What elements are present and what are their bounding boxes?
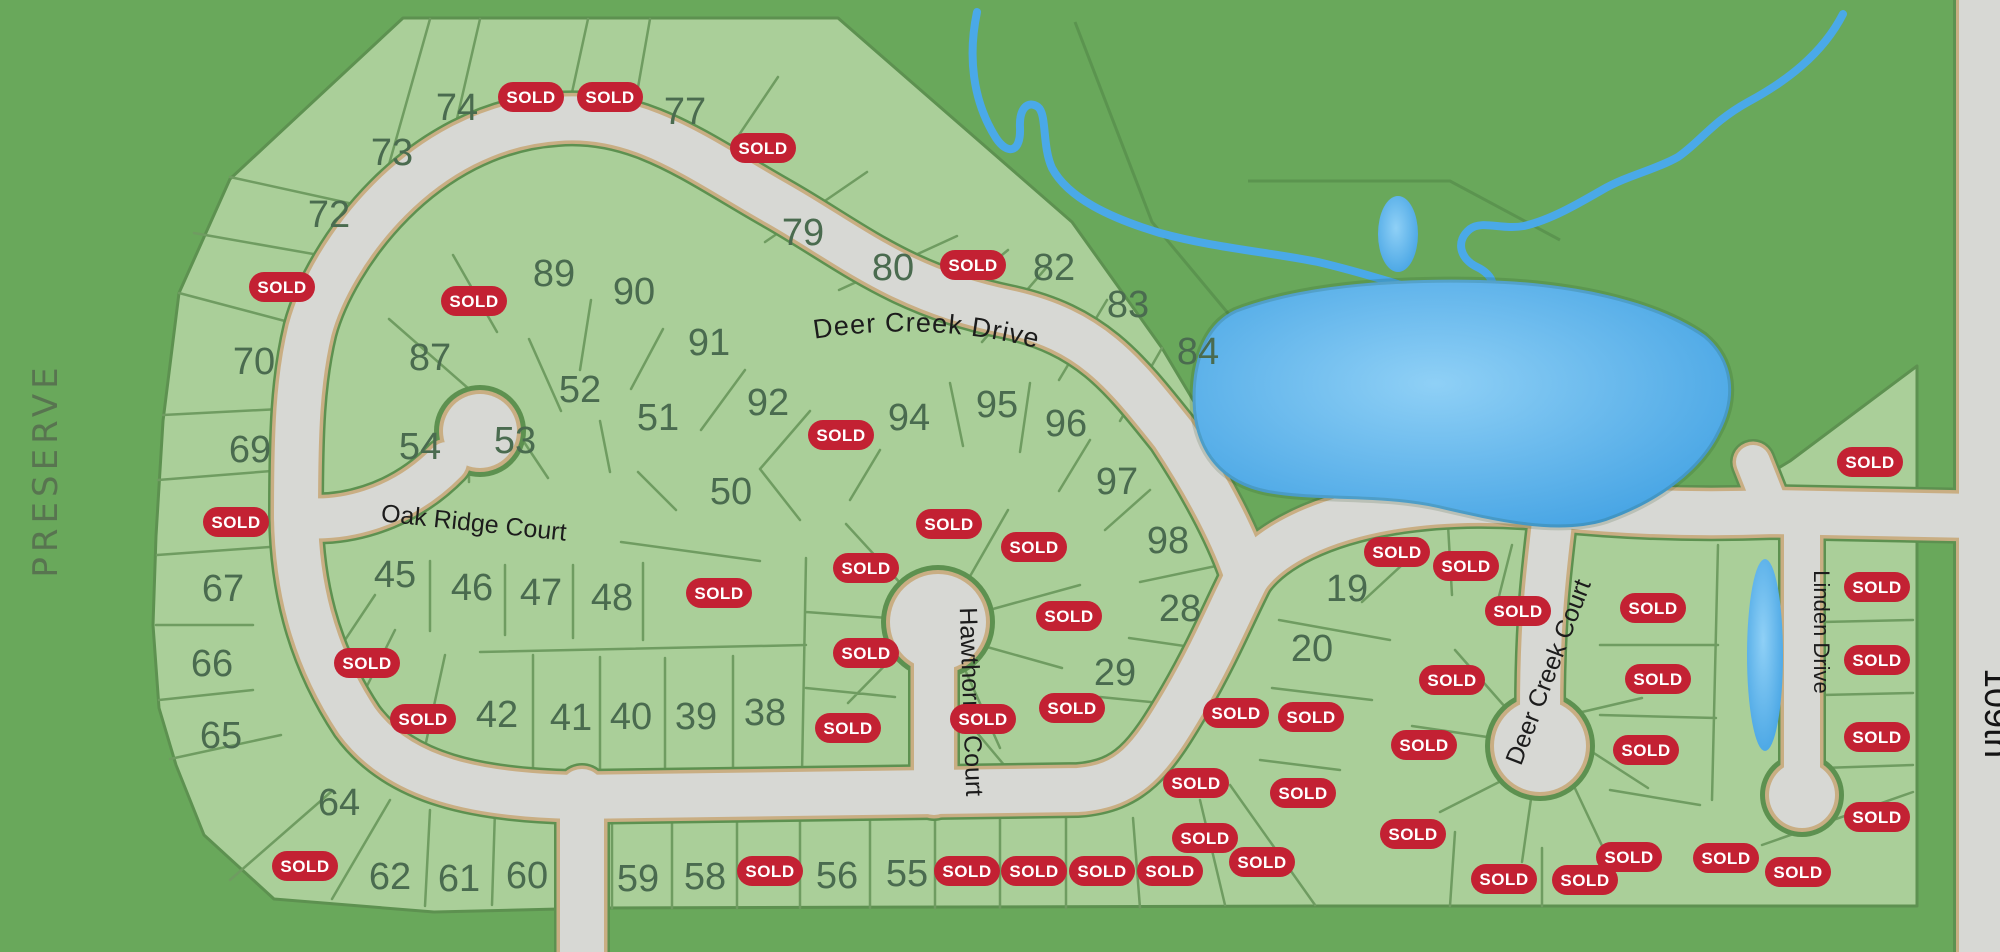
sold-badge: SOLD (1278, 702, 1344, 732)
linden-culdesac (1769, 762, 1835, 828)
sold-badge: SOLD (1270, 778, 1336, 808)
sold-badge: SOLD (833, 553, 899, 583)
sold-badge-text: SOLD (1493, 602, 1542, 621)
sold-badge-text: SOLD (1145, 862, 1194, 881)
lot-number-46: 46 (451, 567, 493, 609)
lot-number-58: 58 (684, 856, 726, 898)
sold-badge: SOLD (1693, 843, 1759, 873)
sold-badge: SOLD (1039, 693, 1105, 723)
sold-badge: SOLD (1844, 645, 1910, 675)
sold-badge: SOLD (808, 420, 874, 450)
plat-map-canvas: Deer Creek Drive Oak Ridge Court Hawthor… (0, 0, 2000, 952)
lot-number-54: 54 (399, 426, 441, 468)
sold-badge-text: SOLD (1047, 699, 1096, 718)
sold-badge: SOLD (249, 272, 315, 302)
street-label-109th: 109th (1977, 668, 2000, 758)
lot-number-97: 97 (1096, 461, 1138, 503)
sold-badge: SOLD (1844, 722, 1910, 752)
sold-badge-text: SOLD (942, 862, 991, 881)
sold-badge: SOLD (1433, 551, 1499, 581)
lot-number-38: 38 (744, 692, 786, 734)
lot-number-40: 40 (610, 696, 652, 738)
sold-badge: SOLD (1391, 730, 1457, 760)
sold-badge: SOLD (1765, 857, 1831, 887)
lot-number-19: 19 (1326, 568, 1368, 610)
lot-number-56: 56 (816, 855, 858, 897)
sold-badge-text: SOLD (1845, 453, 1894, 472)
sold-badge-text: SOLD (1852, 651, 1901, 670)
lot-number-80: 80 (872, 247, 914, 289)
sold-badge-text: SOLD (823, 719, 872, 738)
sold-badge: SOLD (1069, 856, 1135, 886)
sold-badge-text: SOLD (1399, 736, 1448, 755)
lot-number-66: 66 (191, 643, 233, 685)
sold-badge-text: SOLD (1278, 784, 1327, 803)
sold-badge: SOLD (441, 286, 507, 316)
sold-badge: SOLD (1844, 802, 1910, 832)
sold-badge: SOLD (1844, 572, 1910, 602)
sold-badge-text: SOLD (958, 710, 1007, 729)
lot-number-94: 94 (888, 397, 930, 439)
sold-badge-text: SOLD (738, 139, 787, 158)
sold-badge: SOLD (1364, 537, 1430, 567)
sold-badge-text: SOLD (841, 644, 890, 663)
lot-number-69: 69 (229, 429, 271, 471)
sold-badge: SOLD (1036, 601, 1102, 631)
sold-badge: SOLD (577, 82, 643, 112)
lot-number-67: 67 (202, 568, 244, 610)
sold-badge-text: SOLD (398, 710, 447, 729)
sold-badge-text: SOLD (1441, 557, 1490, 576)
sold-badge-text: SOLD (1621, 741, 1670, 760)
sold-badge: SOLD (1229, 847, 1295, 877)
lot-number-87: 87 (409, 337, 451, 379)
sold-badge-text: SOLD (1479, 870, 1528, 889)
lot-number-64: 64 (318, 782, 360, 824)
lot-number-53: 53 (494, 420, 536, 462)
sold-badge: SOLD (390, 704, 456, 734)
sold-badge: SOLD (1596, 842, 1662, 872)
sold-badge-text: SOLD (694, 584, 743, 603)
street-label-linden-drive: Linden Drive (1809, 570, 1834, 694)
sold-badge: SOLD (1203, 698, 1269, 728)
sold-badge: SOLD (1137, 856, 1203, 886)
sold-badge-text: SOLD (1633, 670, 1682, 689)
lot-number-98: 98 (1147, 520, 1189, 562)
sold-badge-text: SOLD (506, 88, 555, 107)
lot-number-89: 89 (533, 253, 575, 295)
sold-badge-text: SOLD (1388, 825, 1437, 844)
sold-badge-text: SOLD (257, 278, 306, 297)
sold-badge-text: SOLD (211, 513, 260, 532)
sold-badge: SOLD (1172, 823, 1238, 853)
sold-badge-text: SOLD (1852, 578, 1901, 597)
lot-number-95: 95 (976, 384, 1018, 426)
sold-badge: SOLD (272, 851, 338, 881)
sold-badge: SOLD (1380, 819, 1446, 849)
lot-number-59: 59 (617, 858, 659, 900)
sold-badge: SOLD (950, 704, 1016, 734)
sold-badge: SOLD (1001, 532, 1067, 562)
pond-linden (1747, 559, 1783, 751)
lot-number-28: 28 (1159, 588, 1201, 630)
lot-number-77: 77 (664, 91, 706, 133)
sold-badge: SOLD (203, 507, 269, 537)
lot-number-41: 41 (550, 697, 592, 739)
lot-number-29: 29 (1094, 652, 1136, 694)
sold-badge-text: SOLD (948, 256, 997, 275)
preserve-label: PRESERVE (26, 362, 66, 577)
sold-badge: SOLD (1837, 447, 1903, 477)
lot-number-83: 83 (1107, 284, 1149, 326)
lot-number-82: 82 (1033, 247, 1075, 289)
sold-badge-text: SOLD (1237, 853, 1286, 872)
sold-badge: SOLD (737, 856, 803, 886)
sold-badge-text: SOLD (816, 426, 865, 445)
sold-badge: SOLD (833, 638, 899, 668)
sold-badge: SOLD (916, 509, 982, 539)
sold-badge: SOLD (1471, 864, 1537, 894)
lot-number-62: 62 (369, 856, 411, 898)
lot-number-39: 39 (675, 696, 717, 738)
lot-number-48: 48 (591, 577, 633, 619)
lot-number-90: 90 (613, 271, 655, 313)
sold-badge: SOLD (1620, 593, 1686, 623)
sold-badge-text: SOLD (1427, 671, 1476, 690)
lot-number-92: 92 (747, 382, 789, 424)
sold-badge: SOLD (1613, 735, 1679, 765)
lot-number-45: 45 (374, 554, 416, 596)
lot-number-42: 42 (476, 694, 518, 736)
sold-badge-text: SOLD (1372, 543, 1421, 562)
sold-badge-text: SOLD (1171, 774, 1220, 793)
lot-number-47: 47 (520, 572, 562, 614)
sold-badge-text: SOLD (1286, 708, 1335, 727)
lot-number-96: 96 (1045, 403, 1087, 445)
sold-badge-text: SOLD (1009, 538, 1058, 557)
sold-badge: SOLD (1001, 856, 1067, 886)
sold-badge-text: SOLD (1211, 704, 1260, 723)
sold-badge: SOLD (1163, 768, 1229, 798)
sold-badge-text: SOLD (1852, 808, 1901, 827)
sold-badge: SOLD (1419, 665, 1485, 695)
lot-number-65: 65 (200, 715, 242, 757)
sold-badge-text: SOLD (585, 88, 634, 107)
sold-badge: SOLD (334, 648, 400, 678)
lot-number-52: 52 (559, 369, 601, 411)
sold-badge-text: SOLD (924, 515, 973, 534)
sold-badge: SOLD (815, 713, 881, 743)
sold-badge: SOLD (686, 578, 752, 608)
sold-badge: SOLD (1625, 664, 1691, 694)
sold-badge-text: SOLD (1180, 829, 1229, 848)
plat-map: Deer Creek Drive Oak Ridge Court Hawthor… (0, 0, 2000, 952)
lot-number-60: 60 (506, 855, 548, 897)
road-pond-spur (1753, 462, 1772, 510)
sold-badge-text: SOLD (1852, 728, 1901, 747)
lot-number-91: 91 (688, 322, 730, 364)
sold-badge: SOLD (498, 82, 564, 112)
sold-badge-text: SOLD (1009, 862, 1058, 881)
pond-large (1193, 280, 1732, 528)
lot-number-73: 73 (371, 132, 413, 174)
lot-number-70: 70 (233, 341, 275, 383)
lot-number-72: 72 (308, 194, 350, 236)
sold-badge-text: SOLD (1560, 871, 1609, 890)
lot-number-61: 61 (438, 858, 480, 900)
sold-badge-text: SOLD (745, 862, 794, 881)
sold-badge: SOLD (940, 250, 1006, 280)
sold-badge-text: SOLD (1701, 849, 1750, 868)
sold-badge-text: SOLD (342, 654, 391, 673)
sold-badge-text: SOLD (1628, 599, 1677, 618)
lot-number-51: 51 (637, 397, 679, 439)
sold-badge-text: SOLD (449, 292, 498, 311)
lot-number-79: 79 (782, 212, 824, 254)
lot-number-55: 55 (886, 853, 928, 895)
lot-number-20: 20 (1291, 628, 1333, 670)
lot-number-74: 74 (436, 87, 478, 129)
sold-badge: SOLD (1485, 596, 1551, 626)
sold-badge-text: SOLD (280, 857, 329, 876)
sold-badge-text: SOLD (1604, 848, 1653, 867)
lot-number-50: 50 (710, 471, 752, 513)
lot-number-84: 84 (1177, 331, 1219, 373)
sold-badge-text: SOLD (841, 559, 890, 578)
sold-badge: SOLD (934, 856, 1000, 886)
sold-badge-text: SOLD (1044, 607, 1093, 626)
sold-badge: SOLD (730, 133, 796, 163)
sold-badge-text: SOLD (1773, 863, 1822, 882)
sold-badge-text: SOLD (1077, 862, 1126, 881)
pond-small (1378, 196, 1418, 272)
